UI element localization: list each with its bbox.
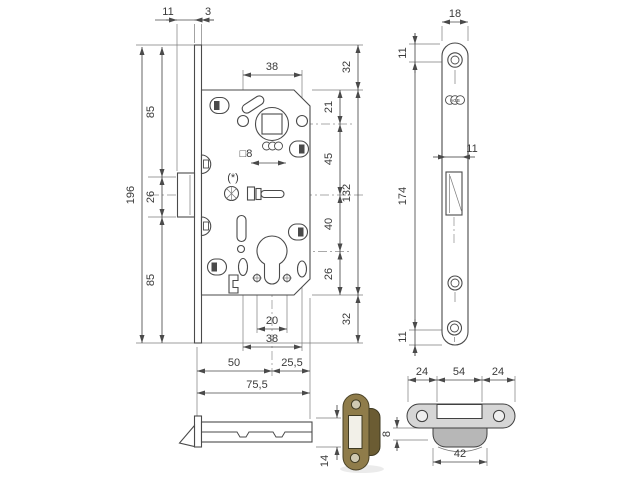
dim-faceplate-width: 18	[442, 8, 468, 22]
svg-text:132: 132	[341, 184, 353, 202]
latch-window-photo	[349, 416, 363, 449]
dim-strike-section-left: 24	[408, 366, 437, 380]
technical-drawing-canvas: 11 3 85 26 85 196 21 45	[0, 0, 640, 480]
svg-text:32: 32	[341, 313, 353, 325]
dim-rear-section: 25,5	[272, 357, 310, 371]
svg-text:14: 14	[319, 455, 331, 467]
handle-screw-hole-right	[297, 116, 308, 127]
screw-hole-photo-top	[351, 400, 360, 409]
reversing-screw	[225, 187, 239, 201]
svg-text:32: 32	[341, 61, 353, 73]
mounting-tab-top-left	[210, 98, 229, 114]
label-note-asterisk: (*)	[227, 172, 239, 184]
dim-case-depth: 75,5	[197, 379, 310, 393]
svg-text:18: 18	[449, 8, 461, 20]
dim-overall-height: 196	[125, 47, 142, 343]
dim-strike-lip-width: 42	[433, 448, 487, 462]
dim-height-top: 85	[145, 47, 162, 177]
dim-lower-hole-spacing: 38	[243, 333, 302, 347]
svg-text:85: 85	[145, 274, 157, 286]
dim-overhang-bottom: 32	[341, 295, 358, 343]
dim-backset: 50	[197, 357, 272, 371]
vertical-slot	[237, 216, 246, 242]
faceplate-side	[195, 416, 202, 447]
oval-slot-left	[239, 259, 248, 276]
svg-text:24: 24	[416, 366, 428, 378]
screw-hole-photo-bottom	[350, 453, 359, 462]
svg-text:20: 20	[266, 315, 278, 327]
dim-bottom-hole-offset: 11	[397, 331, 409, 342]
lock-main-view: 11 3 85 26 85 196 21 45	[125, 6, 363, 419]
dim-top-to-spindle: 21	[323, 90, 340, 124]
svg-text:21: 21	[323, 101, 335, 113]
dim-cylinder-screw-spacing: 20	[257, 315, 287, 329]
strike-plate-photo	[340, 394, 384, 473]
svg-text:8: 8	[381, 431, 393, 437]
mounting-tab-left-lower	[208, 259, 227, 275]
mounting-tab-right-middle	[289, 224, 308, 240]
svg-text:42: 42	[454, 448, 466, 460]
handle-screw-hole-left	[238, 116, 249, 127]
lock-side-view: 14	[180, 405, 342, 467]
dim-faceplate-vertical-chain: 11 174 11	[397, 33, 415, 356]
agb-logo: AGB	[446, 96, 465, 105]
svg-text:24: 24	[492, 366, 504, 378]
strike-screw-hole-left	[416, 410, 427, 421]
svg-text:38: 38	[266, 333, 278, 345]
svg-text:85: 85	[145, 106, 157, 118]
spindle-follower	[256, 108, 289, 141]
strike-screw-hole-right	[493, 410, 504, 421]
spring-block	[248, 187, 255, 200]
svg-text:45: 45	[323, 153, 335, 165]
dim-spindle-hole-spacing: 38	[243, 61, 302, 75]
dim-strike-section-center: 54	[437, 366, 482, 380]
dim-strike-section-right: 24	[482, 366, 515, 380]
dim-body-height: 132	[341, 90, 358, 295]
faceplate-front-view: AGB 18 11 174	[397, 8, 478, 356]
svg-text:26: 26	[323, 268, 335, 280]
dim-hole-spacing: 174	[397, 187, 409, 205]
faceplate-edge-view	[195, 45, 202, 343]
dim-spindle-to-latch: 45	[323, 124, 340, 195]
dim-height-bottom: 85	[145, 217, 162, 343]
svg-text:40: 40	[323, 218, 335, 230]
svg-text:26: 26	[145, 191, 157, 203]
svg-text:11: 11	[466, 143, 477, 155]
svg-text:38: 38	[266, 61, 278, 73]
dim-latch-height: 26	[145, 177, 162, 217]
dim-top-hole-offset: 11	[397, 47, 409, 58]
dim-strike-lip-offset: 8	[381, 417, 397, 451]
dim-overhang-top: 32	[341, 45, 358, 90]
small-hole	[238, 246, 245, 253]
strike-plate-drawing: 24 54 24 42 8	[381, 366, 515, 466]
svg-text:25,5: 25,5	[281, 357, 302, 369]
strike-lip	[433, 428, 487, 447]
svg-text:AGB: AGB	[450, 98, 460, 103]
oval-slot-right	[298, 261, 307, 277]
svg-text:□8: □8	[240, 148, 253, 160]
dim-case-thickness: 14	[316, 405, 341, 467]
dim-faceplate-thickness: 3	[202, 6, 215, 20]
strike-latch-window	[437, 405, 482, 419]
dim-latch-to-cylinder: 40	[323, 195, 340, 252]
latch-bolt	[178, 173, 195, 217]
svg-text:3: 3	[205, 6, 211, 18]
latch-spring-pin	[256, 189, 284, 200]
adjustment-holes-row	[263, 142, 283, 150]
svg-text:54: 54	[453, 366, 465, 378]
latch-tip-side	[180, 426, 195, 447]
svg-text:11: 11	[162, 6, 173, 18]
dim-cylinder-to-bottom: 26	[323, 252, 340, 296]
svg-text:196: 196	[125, 186, 137, 204]
svg-text:75,5: 75,5	[246, 379, 267, 391]
mounting-tab-right-upper	[290, 141, 309, 157]
lock-technical-drawing: 11 3 85 26 85 196 21 45	[0, 0, 640, 480]
svg-text:50: 50	[228, 357, 240, 369]
